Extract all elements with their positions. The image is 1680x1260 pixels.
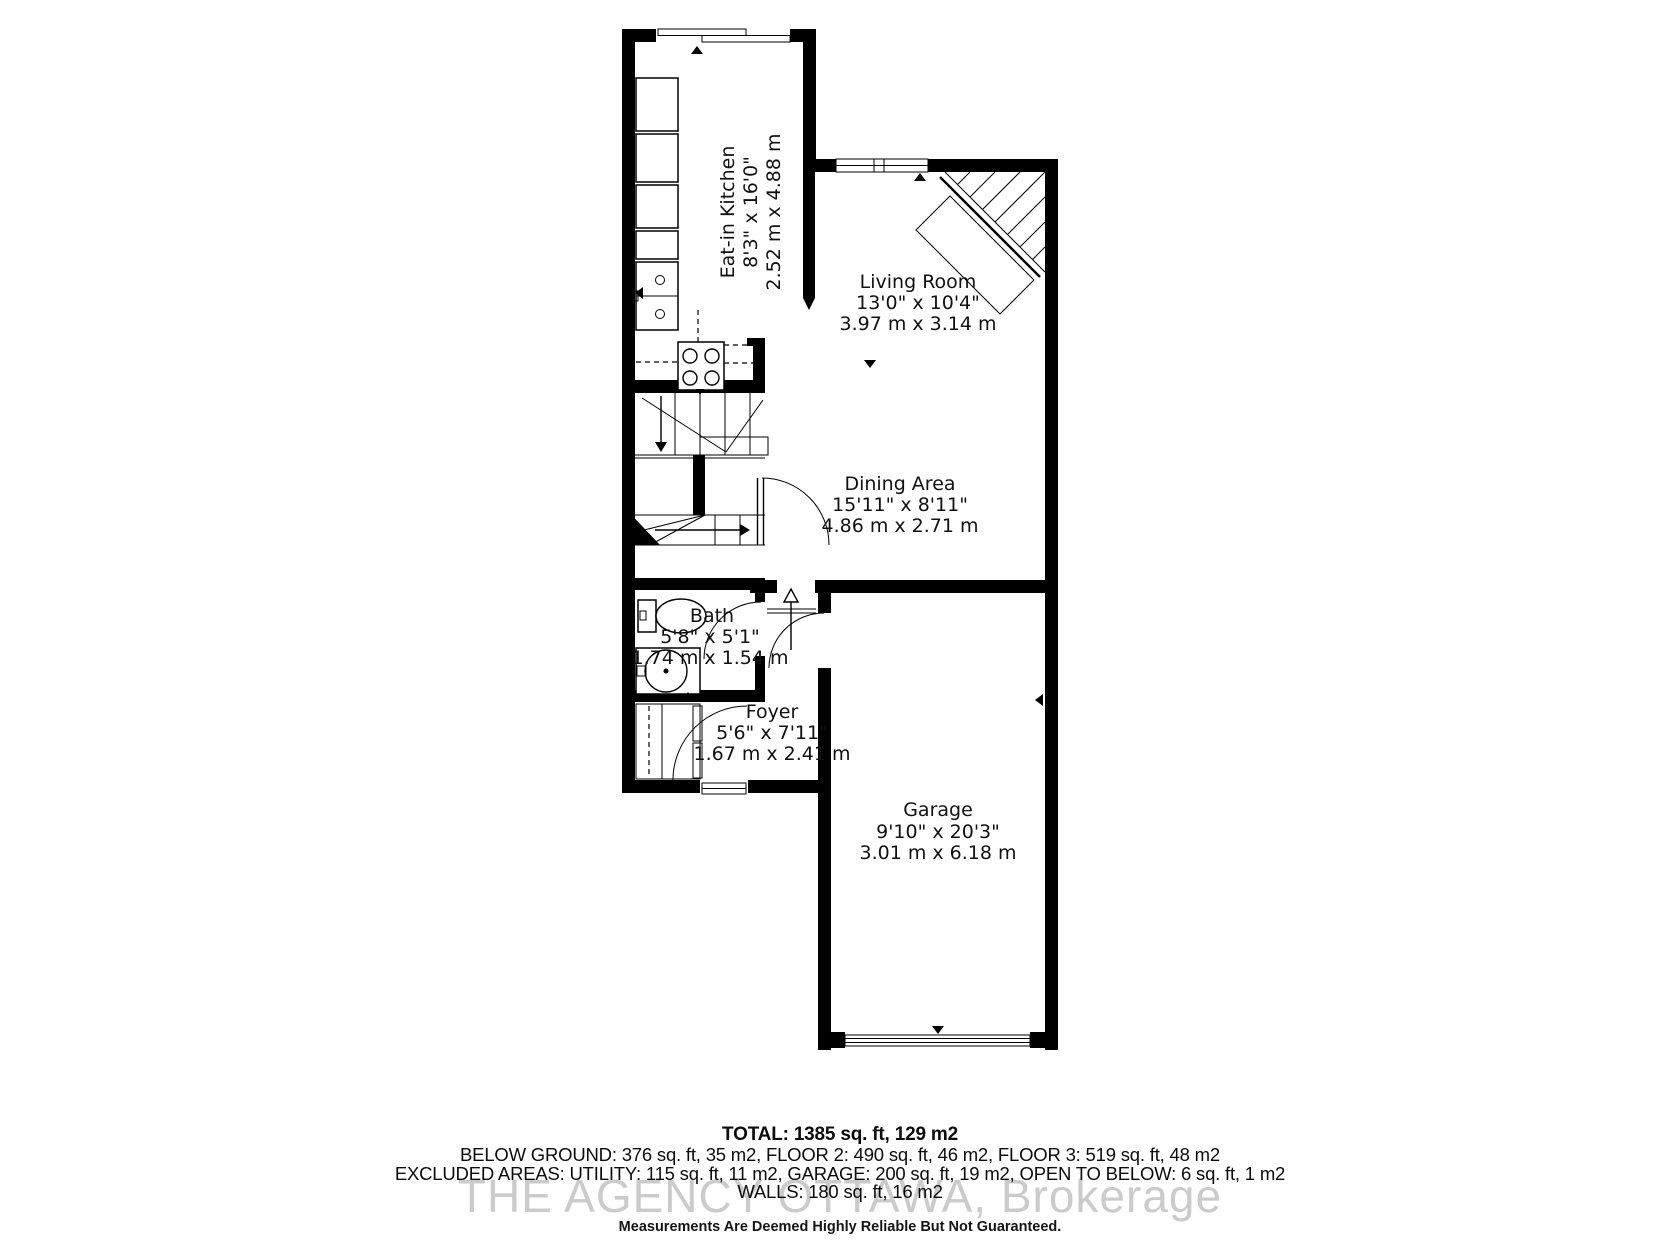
dining-metric: 4.86 m x 2.71 m [821, 515, 978, 537]
kitchen-imperial: 8'3" x 16'0" [740, 156, 762, 268]
foyer-closet [636, 704, 702, 779]
garage-metric: 3.01 m x 6.18 m [859, 842, 1016, 864]
dining-imperial: 15'11" x 8'11" [832, 494, 968, 516]
dimension-marks [635, 46, 1043, 1034]
floor-plan-drawing: Eat-in Kitchen 8'3" x 16'0" 2.52 m x 4.8… [0, 0, 1680, 1260]
living-room-window [836, 159, 928, 172]
room-label-dining: Dining Area 15'11" x 8'11" 4.86 m x 2.71… [821, 473, 978, 537]
bath-metric: 1.74 m x 1.54 m [631, 647, 788, 669]
summary-walls: WALLS: 180 sq. ft, 16 m2 [737, 1181, 942, 1202]
kitchen-sink [628, 262, 678, 330]
garage-door [845, 1032, 1030, 1048]
foyer-metric: 1.67 m x 2.41 m [693, 743, 850, 765]
room-label-living: Living Room 13'0" x 10'4" 3.97 m x 3.14 … [839, 271, 996, 335]
stove [678, 342, 724, 390]
living-name: Living Room [860, 271, 977, 293]
garage-imperial: 9'10" x 20'3" [876, 821, 1000, 843]
bath-imperial: 5'8" x 5'1" [660, 626, 760, 648]
foyer-name: Foyer [746, 701, 799, 723]
kitchen-name: Eat-in Kitchen [717, 146, 739, 279]
staircase [635, 393, 829, 545]
room-label-kitchen: Eat-in Kitchen 8'3" x 16'0" 2.52 m x 4.8… [717, 133, 785, 290]
vestibule-steps [767, 589, 816, 650]
kitchen-metric: 2.52 m x 4.88 m [763, 133, 785, 290]
bath-name: Bath [690, 605, 734, 627]
room-label-garage: Garage 9'10" x 20'3" 3.01 m x 6.18 m [859, 799, 1016, 864]
kitchen-window [656, 29, 790, 42]
dining-name: Dining Area [844, 473, 955, 495]
living-imperial: 13'0" x 10'4" [856, 292, 980, 314]
garage-name: Garage [903, 799, 973, 821]
summary-floors: BELOW GROUND: 376 sq. ft, 35 m2, FLOOR 2… [460, 1144, 1220, 1165]
kitchen-counter [636, 78, 678, 259]
walls [622, 29, 1058, 1050]
disclaimer-text: Measurements Are Deemed Highly Reliable … [619, 1219, 1062, 1235]
foyer-imperial: 5'6" x 7'11" [716, 722, 828, 744]
living-metric: 3.97 m x 3.14 m [839, 313, 996, 335]
summary-total: TOTAL: 1385 sq. ft, 129 m2 [722, 1124, 958, 1145]
floor-plan-page: Eat-in Kitchen 8'3" x 16'0" 2.52 m x 4.8… [0, 0, 1680, 1260]
